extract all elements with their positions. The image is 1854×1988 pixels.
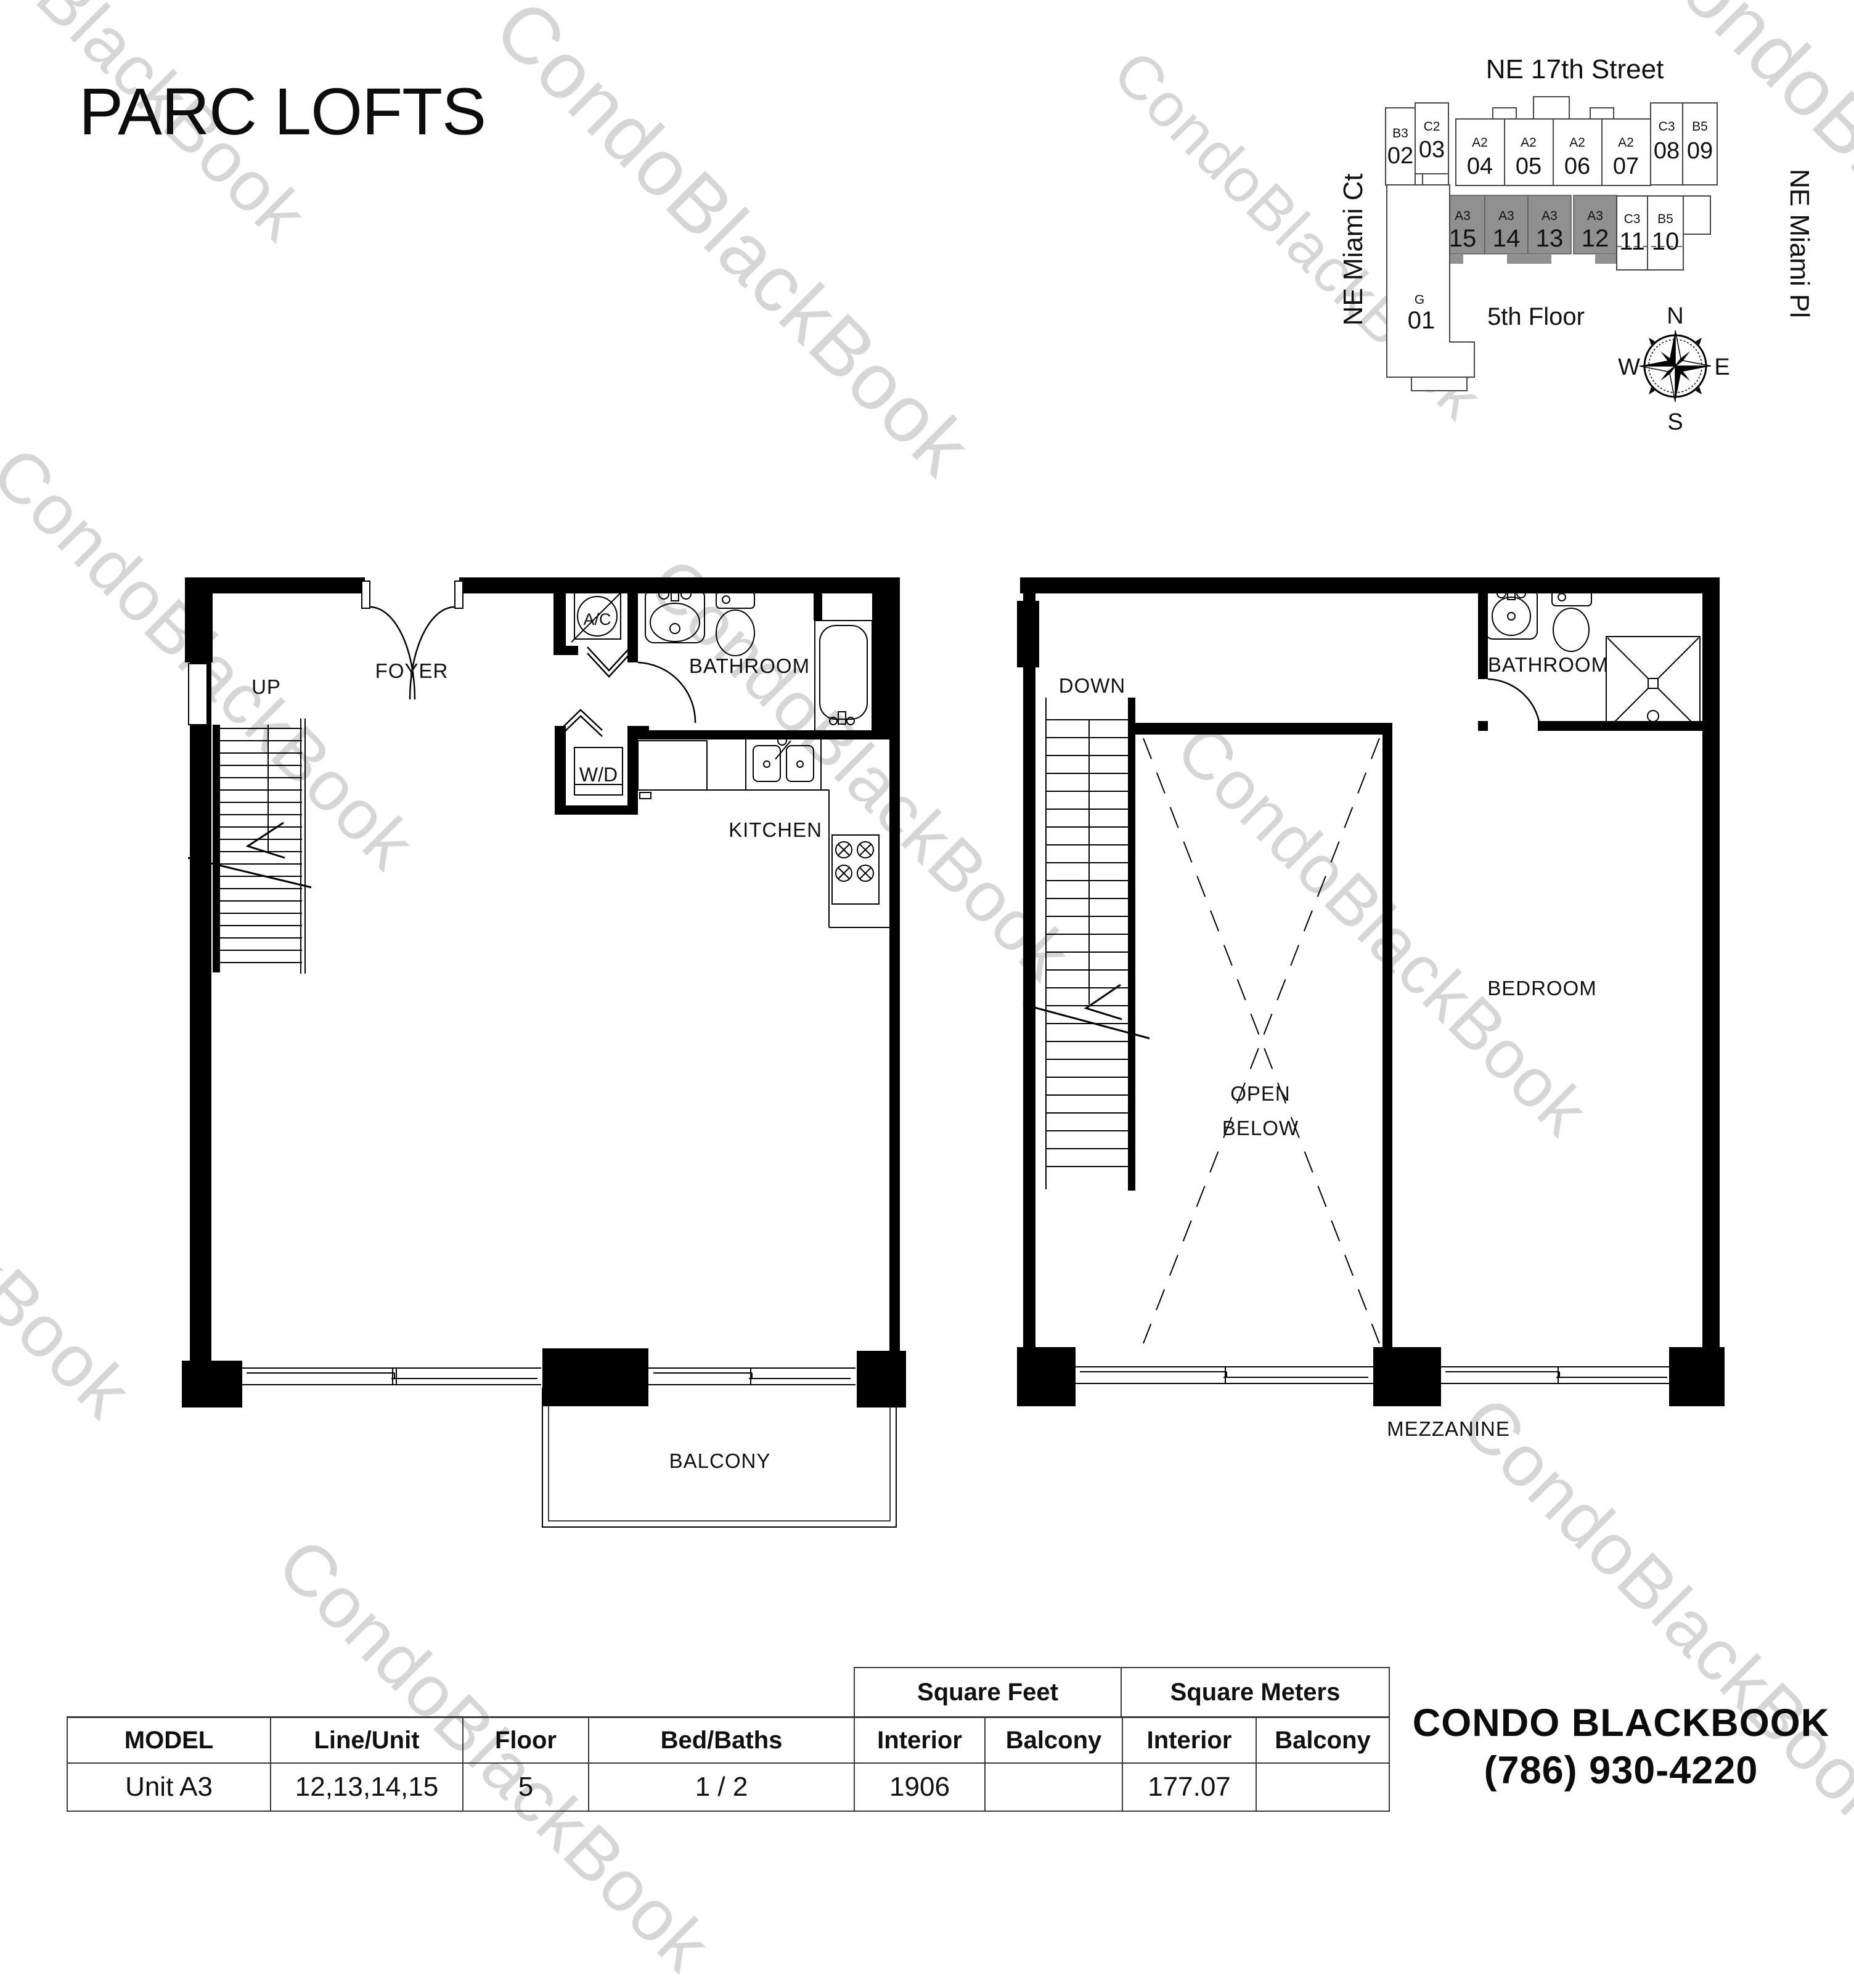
compass-w-label: W <box>1618 354 1640 380</box>
floor-label: 5th Floor <box>1487 303 1585 330</box>
foyer-door-arc <box>370 607 415 699</box>
compass-n-label: N <box>1667 303 1683 329</box>
unit-number: 12 <box>1582 225 1609 252</box>
unit-model: A2 <box>1472 136 1488 150</box>
unit-number: 05 <box>1516 153 1542 179</box>
col-header-floor: Floor <box>462 1716 588 1764</box>
table-header-row: MODEL Line/Unit Floor Bed/Baths Interior… <box>67 1716 1390 1764</box>
toilet-icon <box>716 592 754 656</box>
label-balcony: BALCONY <box>669 1449 771 1472</box>
unit-number: 09 <box>1687 138 1713 164</box>
compass-e-label: E <box>1714 354 1729 380</box>
col-header-sqft-balcony: Balcony <box>984 1716 1122 1764</box>
foyer-door-jamb <box>455 581 463 608</box>
unit-model: B3 <box>1392 126 1408 141</box>
unit-number: 11 <box>1619 228 1645 255</box>
unit-number: 04 <box>1467 153 1493 179</box>
cell-sqft-interior: 1906 <box>854 1764 984 1812</box>
foyer-door-arc <box>410 607 455 699</box>
unit-model: A2 <box>1569 136 1585 150</box>
col-header-sqft-interior: Interior <box>854 1716 984 1764</box>
group-header-square-feet: Square Feet <box>854 1667 1122 1716</box>
group-header-square-meters: Square Meters <box>1122 1667 1390 1716</box>
label-open-below: BELOW <box>1222 1117 1299 1139</box>
street-right-label: NE Miami Pl <box>1784 169 1815 318</box>
label-bathroom: BATHROOM <box>689 654 810 677</box>
col-header-line-unit: Line/Unit <box>270 1716 462 1764</box>
label-ac: A/C <box>583 610 611 629</box>
compass-icon: N E S W <box>1618 303 1730 435</box>
unit-model: G <box>1415 293 1424 307</box>
stove-icon <box>832 835 879 904</box>
unit-model: B5 <box>1692 120 1708 134</box>
label-bedroom: BEDROOM <box>1487 977 1597 1000</box>
label-bathroom: BATHROOM <box>1488 653 1609 676</box>
street-top-label: NE 17th Street <box>1486 54 1664 84</box>
col-header-bed-baths: Bed/Baths <box>588 1716 854 1764</box>
kitchen-sink-icon <box>746 735 821 790</box>
cell-bed-baths: 1 / 2 <box>588 1764 854 1812</box>
label-foyer: FOYER <box>375 659 449 682</box>
unit-spec-table: MODEL Line/Unit Floor Bed/Baths Interior… <box>67 1716 1390 1812</box>
cell-sqm-interior: 177.07 <box>1122 1764 1256 1812</box>
table-group-header: Square Feet Square Meters <box>854 1667 1390 1716</box>
label-mezzanine: MEZZANINE <box>1387 1417 1510 1440</box>
unit-model: C3 <box>1659 120 1675 134</box>
foyer-door-jamb <box>362 581 370 608</box>
unit-number: 15 <box>1449 225 1477 252</box>
unit-number: 02 <box>1387 143 1413 169</box>
unit-model: C3 <box>1624 212 1641 226</box>
toilet-icon <box>1552 589 1591 651</box>
watermark-text: CondoBlackBook <box>0 961 149 1435</box>
stair-direction-arrow <box>248 823 285 858</box>
label-down: DOWN <box>1059 674 1125 697</box>
col-header-sqm-balcony: Balcony <box>1256 1716 1390 1764</box>
unit-number: 01 <box>1408 307 1435 334</box>
unit-number: 14 <box>1493 225 1521 252</box>
label-wd: W/D <box>579 764 618 786</box>
stair-direction-arrow <box>1086 985 1122 1019</box>
unit-number: 08 <box>1654 138 1680 164</box>
bathroom-door-arc <box>1488 679 1540 725</box>
bathroom-door-arc <box>638 662 695 723</box>
col-header-model: MODEL <box>67 1716 270 1764</box>
watermark-text: CondoBlackBook <box>477 0 989 494</box>
bathtub-icon <box>815 621 872 733</box>
brand-phone: (786) 930-4220 <box>1405 1747 1837 1794</box>
label-open-below: OPEN <box>1230 1082 1291 1105</box>
footer-brand-block: CONDO BLACKBOOK (786) 930-4220 <box>1405 1700 1837 1794</box>
mezzanine-floor-plan: DOWN BATHROOM OPEN BELOW BEDROOM MEZZANI… <box>1017 573 1757 1485</box>
cell-sqm-balcony <box>1256 1764 1390 1812</box>
cell-sqft-balcony <box>984 1764 1122 1812</box>
unit-model: B5 <box>1657 212 1673 226</box>
unit-number: 06 <box>1564 153 1590 179</box>
page-title: PARC LOFTS <box>79 73 486 150</box>
brand-name: CONDO BLACKBOOK <box>1405 1700 1837 1747</box>
ac-closet-door <box>587 653 631 677</box>
unit-number: 10 <box>1652 228 1680 255</box>
label-up: UP <box>251 675 281 698</box>
wd-closet-door <box>560 710 602 730</box>
table-row: Unit A3 12,13,14,15 5 1 / 2 1906 177.07 <box>67 1764 1390 1812</box>
col-header-sqm-interior: Interior <box>1122 1716 1256 1764</box>
bathroom-sink-icon <box>1485 589 1537 639</box>
street-left-label: NE Miami Ct <box>1338 174 1368 326</box>
main-floor-plan: UP FOYER A/C W/D BATHROOM KITCHEN BALCON… <box>179 573 906 1534</box>
unit-model: A2 <box>1618 136 1634 150</box>
unit-model: C2 <box>1424 120 1440 134</box>
site-key-plan: NE 17th Street NE Miami Ct NE Miami Pl B… <box>1319 46 1854 478</box>
cell-floor: 5 <box>462 1764 588 1812</box>
cell-line-unit: 12,13,14,15 <box>270 1764 462 1812</box>
bathroom-sink-icon <box>645 589 704 643</box>
ac-closet-door <box>587 647 631 670</box>
unit-number: 07 <box>1613 153 1639 179</box>
unit-number: 13 <box>1536 225 1564 252</box>
unit-model: A3 <box>1498 209 1514 223</box>
wd-closet-door <box>560 716 602 736</box>
unit-model: A3 <box>1542 209 1558 223</box>
compass-s-label: S <box>1667 409 1683 435</box>
cell-model: Unit A3 <box>67 1764 270 1812</box>
unit-model: A3 <box>1587 209 1603 223</box>
open-below-x <box>1143 738 1379 1343</box>
label-kitchen: KITCHEN <box>729 818 822 841</box>
unit-model: A2 <box>1521 136 1537 150</box>
stairs-down <box>1023 698 1150 1191</box>
unit-number: 03 <box>1419 137 1445 163</box>
shower-icon <box>1606 637 1700 730</box>
unit-model: A3 <box>1455 209 1471 223</box>
